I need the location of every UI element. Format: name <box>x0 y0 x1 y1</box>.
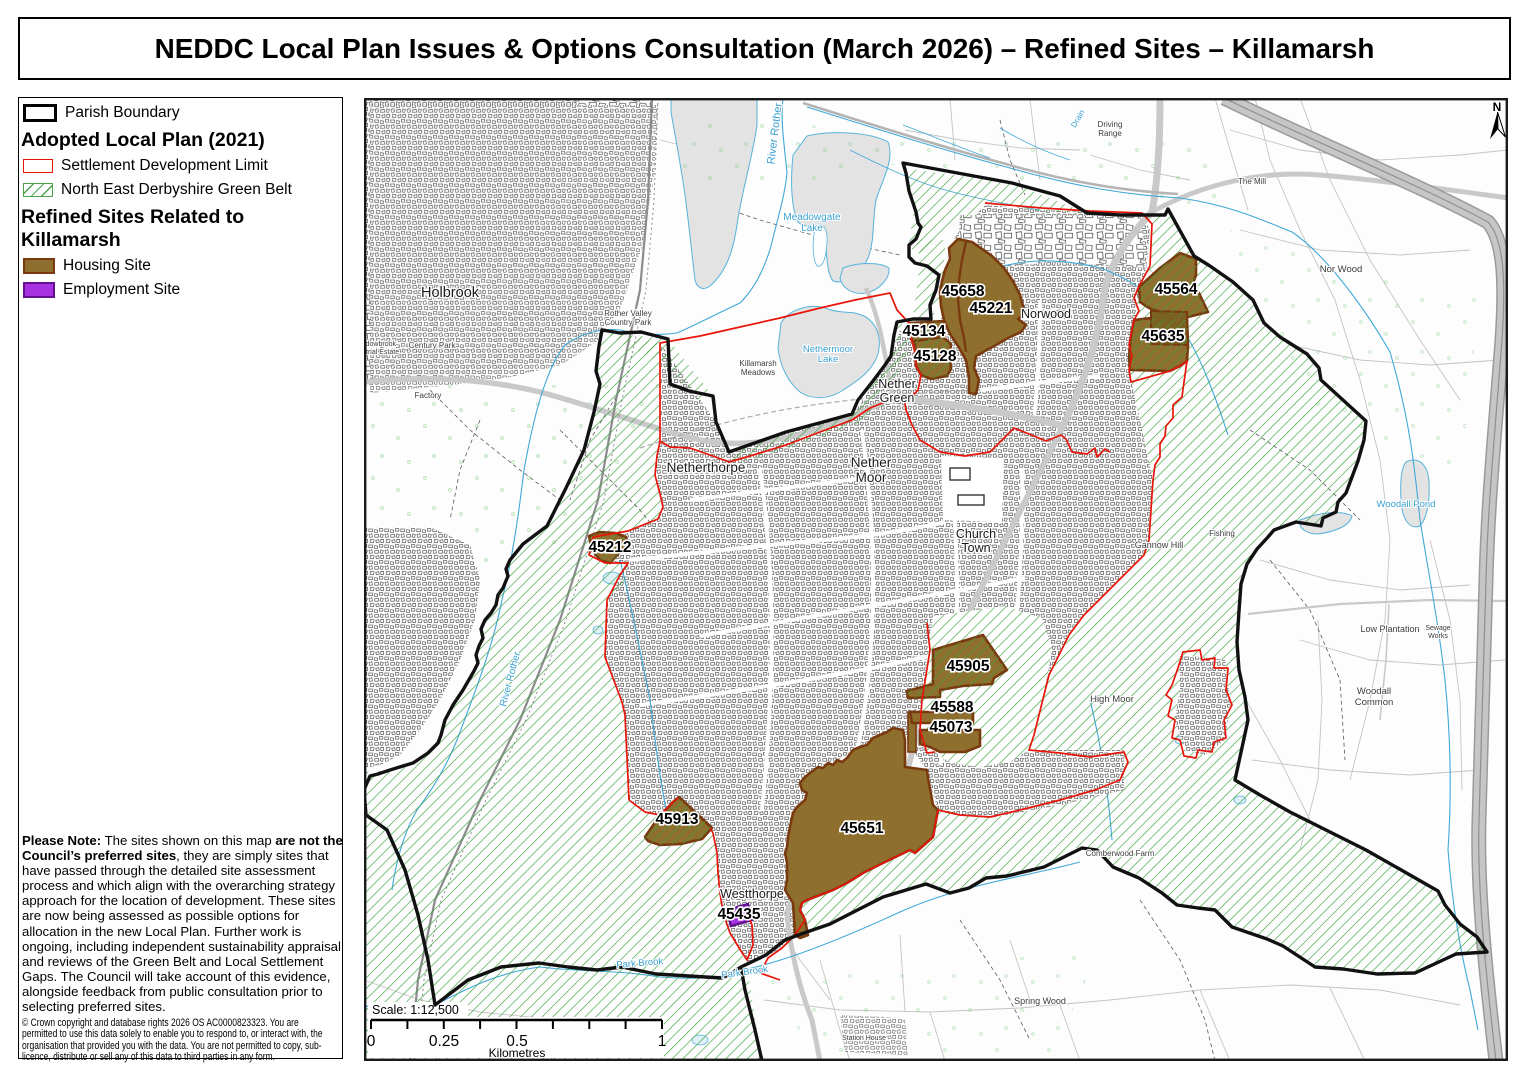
svg-text:Lake: Lake <box>818 354 839 365</box>
svg-text:Norwood: Norwood <box>1021 307 1071 321</box>
svg-text:Common: Common <box>1355 697 1394 708</box>
svg-text:Killamarsh: Killamarsh <box>739 359 776 368</box>
svg-text:0: 0 <box>367 1033 376 1050</box>
svg-text:Lake: Lake <box>801 223 823 234</box>
svg-text:45651: 45651 <box>840 820 883 837</box>
svg-text:Nether: Nether <box>851 455 892 470</box>
svg-text:Meadows: Meadows <box>741 368 775 377</box>
svg-text:Country Park: Country Park <box>605 318 653 327</box>
svg-text:Spring Wood: Spring Wood <box>1014 996 1066 1006</box>
svg-text:Holbrook: Holbrook <box>421 285 480 301</box>
svg-text:Meadowbrook: Meadowbrook <box>364 341 396 348</box>
svg-text:Church: Church <box>956 527 996 541</box>
svg-text:Rother Valley: Rother Valley <box>604 309 651 318</box>
svg-text:0.25: 0.25 <box>429 1033 459 1050</box>
svg-text:Fishing: Fishing <box>1209 529 1235 538</box>
svg-text:Scale: 1:12,500: Scale: 1:12,500 <box>372 1003 459 1017</box>
svg-text:45564: 45564 <box>1154 281 1197 298</box>
svg-text:Factory: Factory <box>415 391 442 400</box>
svg-text:Woodall: Woodall <box>1357 686 1391 697</box>
svg-text:Nor Wood: Nor Wood <box>1320 264 1363 275</box>
svg-text:45212: 45212 <box>588 539 631 556</box>
svg-text:Works: Works <box>1428 633 1448 640</box>
svg-text:45128: 45128 <box>913 348 956 365</box>
svg-text:45905: 45905 <box>946 658 989 675</box>
svg-text:Low Plantation: Low Plantation <box>1360 624 1419 634</box>
svg-text:Sewage: Sewage <box>1425 625 1450 632</box>
svg-text:N: N <box>1493 100 1502 114</box>
svg-text:Kilometres: Kilometres <box>489 1046 546 1060</box>
svg-text:45635: 45635 <box>1141 328 1184 345</box>
svg-text:Town: Town <box>961 541 990 555</box>
svg-text:45588: 45588 <box>930 699 973 716</box>
svg-text:Gannow Hill: Gannow Hill <box>1135 540 1184 550</box>
svg-text:Range: Range <box>1098 129 1122 138</box>
svg-text:45658: 45658 <box>941 283 984 300</box>
svg-text:45134: 45134 <box>902 323 945 340</box>
svg-text:The Mill: The Mill <box>1238 177 1266 186</box>
svg-text:45913: 45913 <box>655 811 698 828</box>
svg-text:1: 1 <box>658 1033 667 1050</box>
svg-text:Century Park: Century Park <box>409 341 457 350</box>
svg-text:Station House: Station House <box>842 1035 886 1042</box>
svg-text:45435: 45435 <box>717 906 760 923</box>
svg-text:Green: Green <box>880 391 915 405</box>
svg-text:High Moor: High Moor <box>1090 694 1134 705</box>
svg-text:Comberwood Farm: Comberwood Farm <box>1086 849 1155 858</box>
svg-text:Moor: Moor <box>856 470 887 485</box>
svg-text:Woodall Pond: Woodall Pond <box>1377 499 1436 510</box>
svg-text:45073: 45073 <box>929 719 972 736</box>
svg-text:Westthorpe: Westthorpe <box>720 887 784 901</box>
svg-text:Meadowgate: Meadowgate <box>783 212 841 223</box>
svg-text:Industrial Estate: Industrial Estate <box>364 349 399 356</box>
svg-text:Netherthorpe: Netherthorpe <box>667 460 746 475</box>
svg-text:Nether: Nether <box>878 377 916 391</box>
svg-text:Driving: Driving <box>1098 120 1123 129</box>
svg-text:45221: 45221 <box>969 300 1012 317</box>
